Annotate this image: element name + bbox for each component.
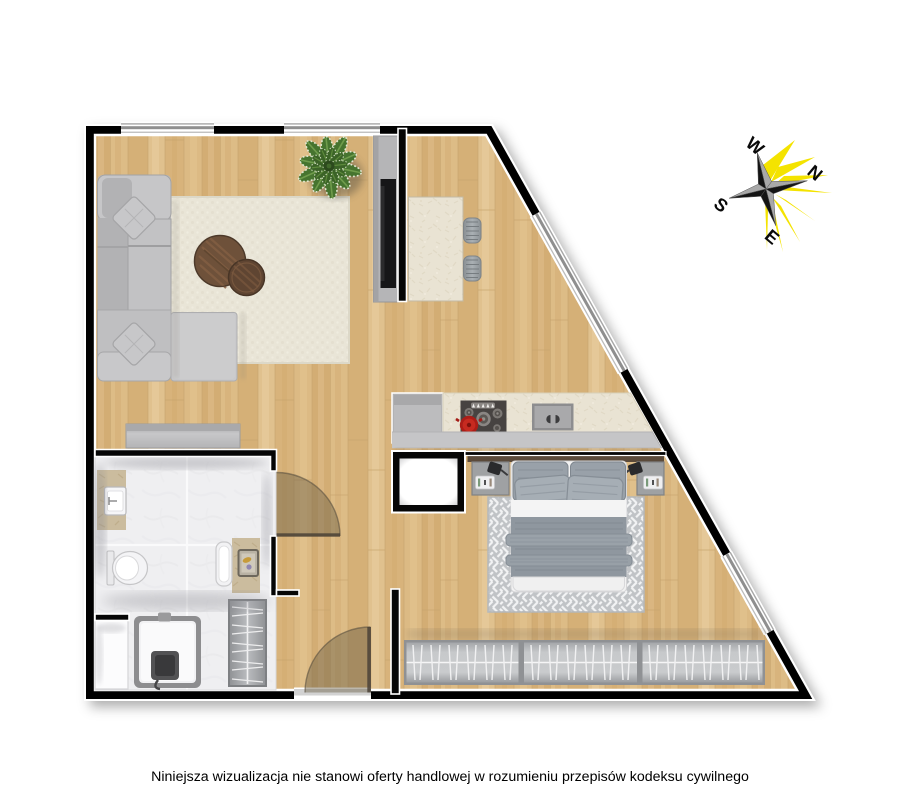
svg-text:Niniejsza wizualizacja nie sta: Niniejsza wizualizacja nie stanowi ofert… [151, 769, 749, 785]
